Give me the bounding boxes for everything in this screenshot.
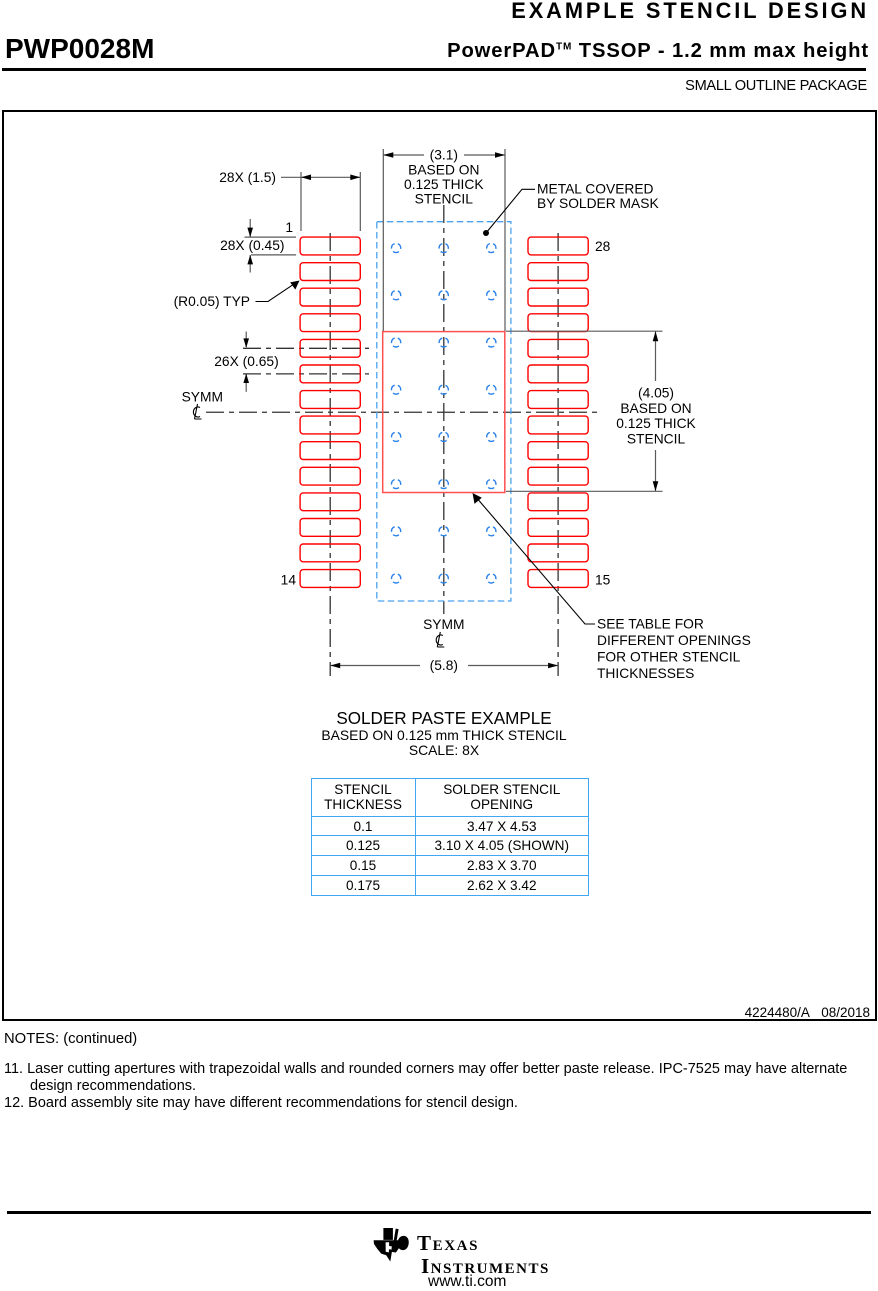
svg-text:0.125 THICK: 0.125 THICK [616,416,696,431]
svg-text:1: 1 [285,220,293,235]
svg-text:BASED ON: BASED ON [620,401,691,416]
svg-text:DIFFERENT OPENINGS: DIFFERENT OPENINGS [597,633,751,648]
svg-text:BY SOLDER MASK: BY SOLDER MASK [537,196,659,211]
svg-text:28X (0.45): 28X (0.45) [220,238,284,253]
svg-text:SYMM: SYMM [423,617,464,632]
svg-text:THICKNESSES: THICKNESSES [597,666,694,681]
svg-text:0.125 THICK: 0.125 THICK [404,177,484,192]
svg-text:14: 14 [281,573,297,588]
svg-text:(R0.05) TYP: (R0.05) TYP [174,294,250,309]
svg-text:(4.05): (4.05) [638,385,674,400]
svg-text:15: 15 [595,573,611,588]
svg-text:BASED ON: BASED ON [408,162,479,177]
svg-text:METAL COVERED: METAL COVERED [537,181,654,196]
svg-text:SYMM: SYMM [182,390,223,405]
svg-text:STENCIL: STENCIL [627,431,686,446]
svg-text:26X (0.65): 26X (0.65) [214,354,278,369]
svg-text:28: 28 [595,239,611,254]
svg-text:FOR OTHER STENCIL: FOR OTHER STENCIL [597,650,741,665]
svg-text:STENCIL: STENCIL [415,192,474,207]
svg-text:(3.1): (3.1) [430,148,458,163]
svg-text:(5.8): (5.8) [430,658,458,673]
svg-text:SEE TABLE FOR: SEE TABLE FOR [597,616,704,631]
svg-text:28X (1.5): 28X (1.5) [219,170,276,185]
